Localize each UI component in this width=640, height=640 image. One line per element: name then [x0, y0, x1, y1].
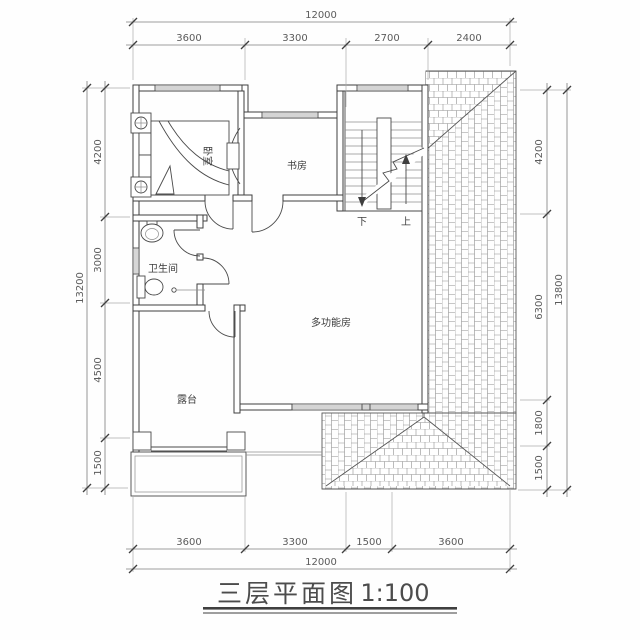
title-scale: 1:100: [360, 579, 429, 607]
nightstand: [131, 177, 151, 197]
bedroom-door: [205, 201, 233, 229]
dim-top-2: 3300: [282, 33, 307, 44]
dim-right-1: 4200: [534, 139, 545, 164]
dimensions-bottom: 3600 3300 1500 3600 12000: [126, 490, 517, 573]
dim-left-2: 3000: [93, 247, 104, 272]
title-underline-thick: [203, 607, 457, 610]
dim-right-2: 6300: [534, 294, 545, 319]
dim-left-3: 4500: [93, 357, 104, 382]
dim-left-total: 13200: [75, 272, 86, 304]
terrace-door: [209, 311, 235, 337]
stair-up-label: 上: [401, 216, 411, 228]
study-label: 书房: [287, 159, 307, 172]
bathroom-door: [174, 230, 200, 256]
multifunction-label: 多功能房: [311, 316, 351, 329]
dim-top-total: 12000: [305, 10, 337, 21]
roof-bottom-wing: [322, 413, 516, 489]
dim-left-1: 4200: [93, 139, 104, 164]
sink: [141, 221, 163, 242]
staircase: 下 上: [345, 91, 424, 228]
bathroom-fixtures: [137, 221, 205, 298]
dimensions-right: 4200 6300 1800 1500 13800: [518, 83, 571, 497]
floor-plan-drawing: 下 上 卧室 书房 卫生间 多功能房 露台 12000: [0, 0, 640, 640]
dim-bottom-3: 1500: [356, 537, 381, 548]
dim-top-1: 3600: [176, 33, 201, 44]
dim-bottom-4: 3600: [438, 537, 463, 548]
bathroom-label: 卫生间: [148, 262, 178, 275]
terrace-label: 露台: [177, 393, 197, 406]
dim-bottom-total: 12000: [305, 557, 337, 568]
toilet: [137, 276, 163, 298]
dim-top-4: 2400: [456, 33, 481, 44]
dimensions-left: 4200 3000 4500 1500 13200: [75, 81, 130, 495]
dim-right-3: 1800: [534, 410, 545, 435]
roof-right-wing: [426, 71, 516, 413]
dim-right-total: 13800: [554, 274, 565, 306]
bedroom-furniture: [131, 113, 240, 197]
dim-bottom-2: 3300: [282, 537, 307, 548]
dim-right-4: 1500: [534, 455, 545, 480]
dim-left-4: 1500: [93, 450, 104, 475]
stair-down-label: 下: [357, 217, 367, 228]
multifunction-window: [292, 404, 418, 410]
dim-top-3: 2700: [374, 33, 399, 44]
dim-bottom-1: 3600: [176, 537, 201, 548]
drawing-title: 三层平面图 1:100: [203, 579, 457, 613]
study-door: [252, 201, 283, 232]
bedroom-label: 卧室: [201, 146, 214, 166]
nightstand: [131, 113, 151, 133]
terrace-railing: [133, 432, 245, 451]
title-text: 三层平面图: [217, 579, 357, 608]
multifunction-door: [203, 258, 229, 284]
floor-plan-sheet: 下 上 卧室 书房 卫生间 多功能房 露台 12000: [0, 0, 640, 640]
bed: [139, 121, 229, 195]
canopy-below: [131, 452, 322, 496]
